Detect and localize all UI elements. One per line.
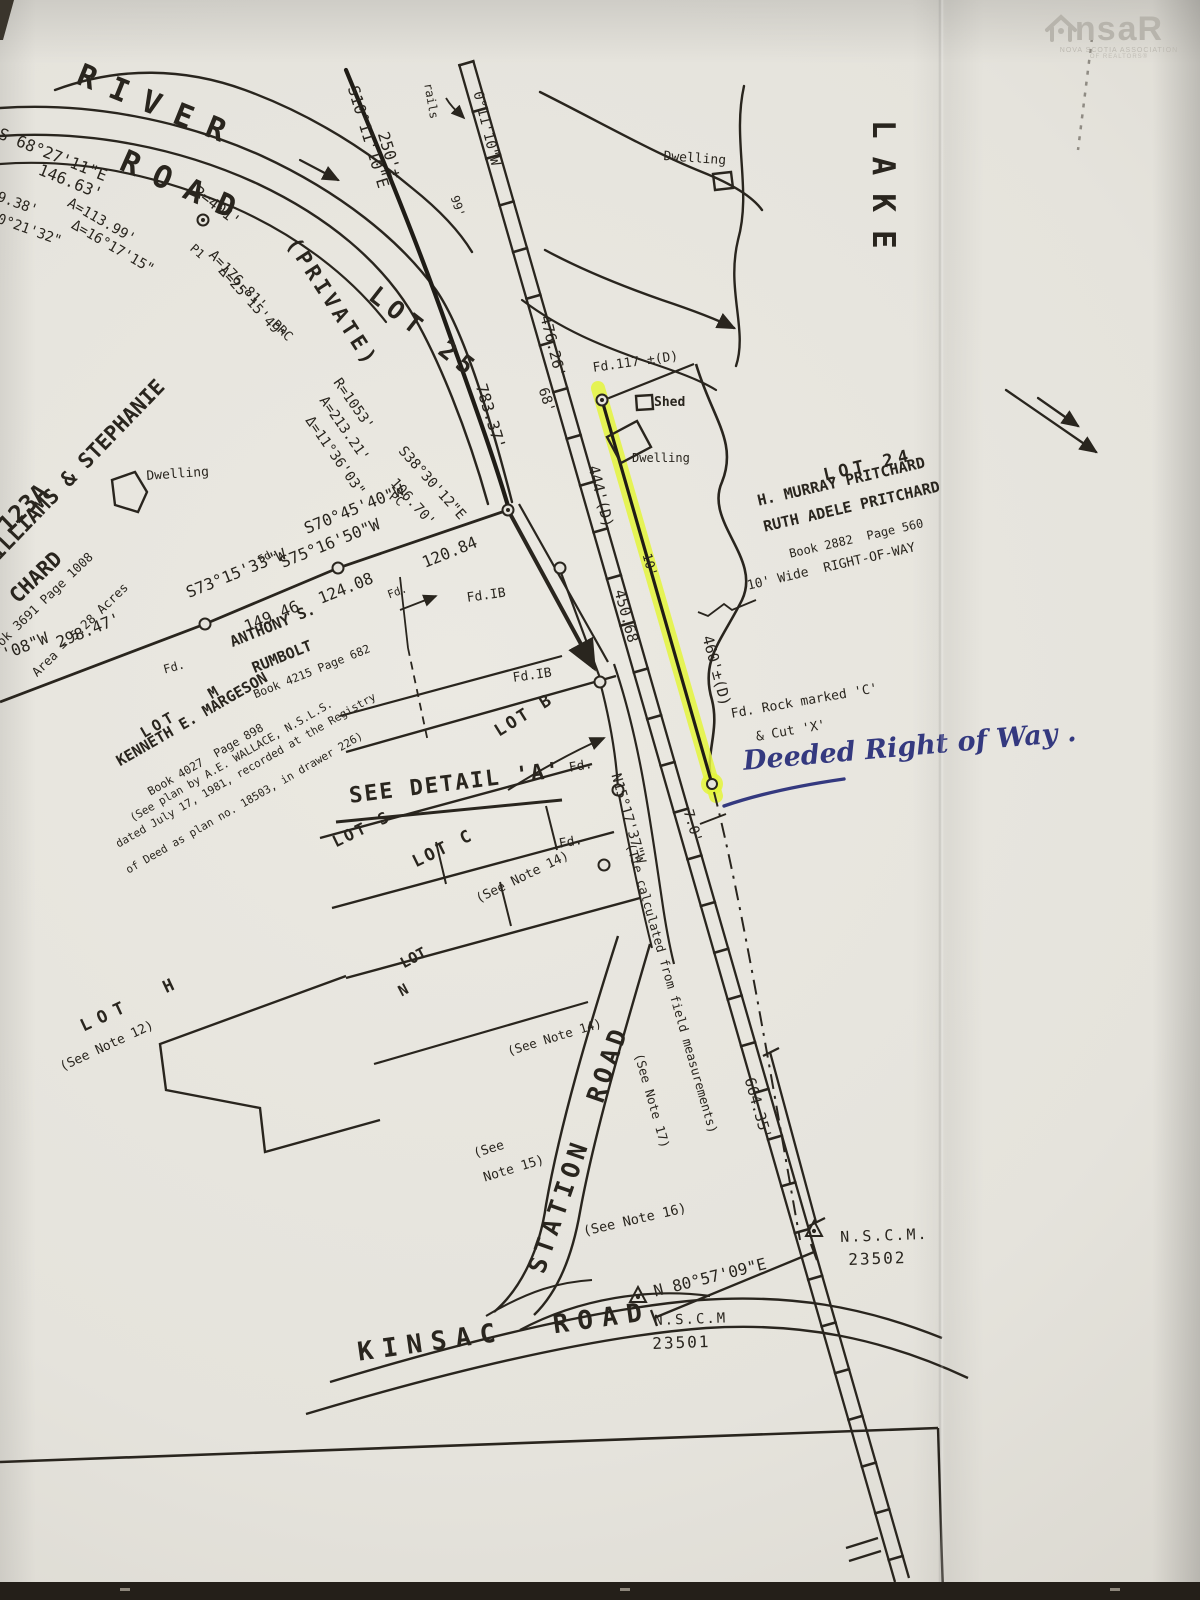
nsar-logo-ar: aR	[1118, 14, 1163, 45]
shed-square	[636, 395, 653, 410]
map-border	[0, 1428, 943, 1596]
dwelling-3-square	[112, 472, 147, 512]
nsar-logo-ns: ns	[1075, 14, 1117, 45]
house-icon	[1044, 14, 1078, 44]
scan-edge-tick	[1110, 1588, 1120, 1591]
shed-label: Shed	[654, 396, 685, 409]
nsar-logo: ns aR NOVA SCOTIA ASSOCIATION OF REALTOR…	[1044, 14, 1194, 60]
paper-crease	[938, 0, 944, 1600]
nscm-1b-label: 23501	[652, 1334, 711, 1352]
fd-e-label: Fd.	[558, 834, 583, 851]
scan-corner-mark	[0, 0, 14, 40]
survey-plan-page: ns aR NOVA SCOTIA ASSOCIATION OF REALTOR…	[0, 0, 1200, 1600]
dwelling-2-label: Dwelling	[632, 452, 690, 464]
fd-d-label: Fd.	[568, 758, 593, 775]
scan-edge-strip	[0, 1582, 1200, 1600]
shoreline-squiggles	[522, 86, 1096, 452]
nscm-1a-label: N.S.C.M	[654, 1311, 727, 1328]
nscm-2a-label: N.S.C.M.	[840, 1227, 929, 1245]
nsar-logo-line2: OF REALTORS®	[1044, 54, 1194, 60]
row-leader-line	[698, 600, 756, 616]
scan-edge-tick	[620, 1588, 630, 1591]
scan-edge-tick	[120, 1588, 130, 1591]
tie-lines	[714, 792, 825, 1240]
nscm-2b-label: 23502	[848, 1250, 907, 1268]
nsar-logo-line1: NOVA SCOTIA ASSOCIATION	[1044, 47, 1194, 54]
handwriting-underline	[724, 779, 844, 806]
railway	[446, 60, 909, 1582]
lake-label: LAKE	[867, 120, 898, 267]
